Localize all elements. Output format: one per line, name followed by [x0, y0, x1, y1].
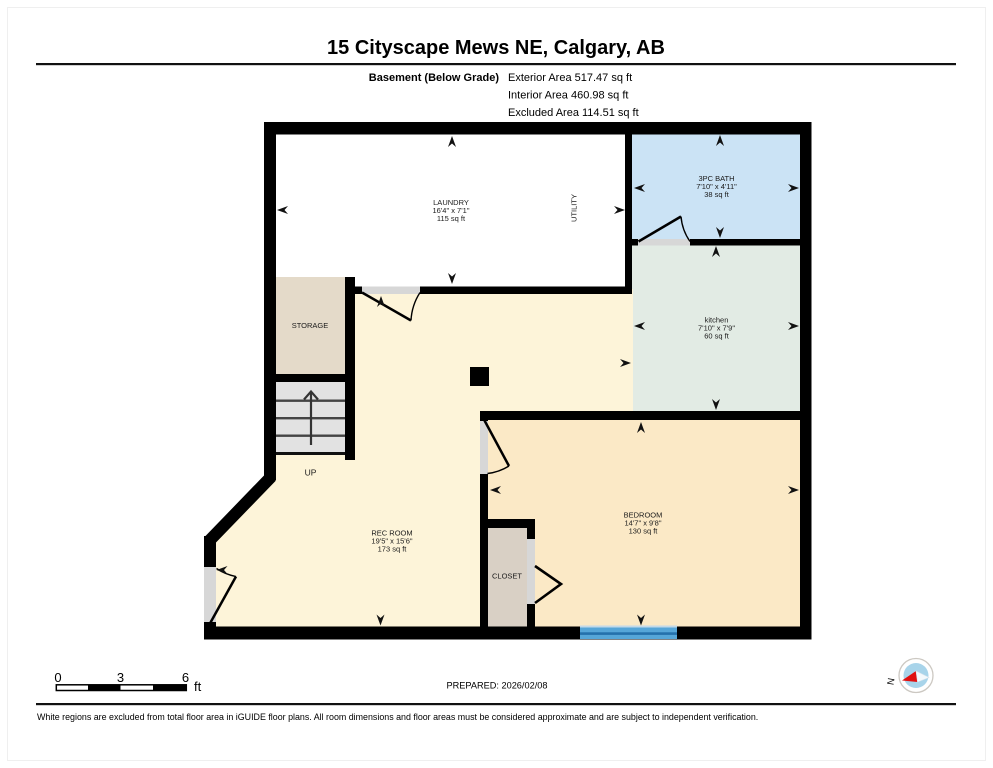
svg-text:3: 3 — [117, 670, 124, 685]
svg-text:Exterior Area 517.47 sq ft: Exterior Area 517.47 sq ft — [508, 72, 632, 84]
svg-text:38 sq ft: 38 sq ft — [704, 190, 730, 199]
svg-text:UTILITY: UTILITY — [570, 194, 579, 222]
svg-text:15 Cityscape Mews NE, Calgary,: 15 Cityscape Mews NE, Calgary, AB — [327, 37, 665, 59]
svg-text:White regions are excluded fro: White regions are excluded from total fl… — [37, 712, 758, 722]
svg-text:0: 0 — [54, 670, 61, 685]
svg-text:PREPARED: 2026/02/08: PREPARED: 2026/02/08 — [447, 681, 548, 691]
svg-text:UP: UP — [305, 468, 317, 478]
svg-text:130 sq ft: 130 sq ft — [629, 527, 659, 536]
svg-text:Excluded Area 114.51 sq ft: Excluded Area 114.51 sq ft — [508, 107, 639, 119]
svg-text:173 sq ft: 173 sq ft — [378, 545, 408, 554]
svg-text:STORAGE: STORAGE — [292, 321, 329, 330]
svg-text:Interior Area 460.98 sq ft: Interior Area 460.98 sq ft — [508, 90, 628, 102]
svg-text:115 sq ft: 115 sq ft — [437, 214, 466, 223]
svg-text:6: 6 — [182, 670, 189, 685]
svg-text:60 sq ft: 60 sq ft — [704, 332, 730, 341]
svg-text:ft: ft — [194, 679, 202, 694]
svg-text:Basement (Below Grade): Basement (Below Grade) — [369, 72, 500, 84]
svg-text:CLOSET: CLOSET — [492, 572, 522, 581]
